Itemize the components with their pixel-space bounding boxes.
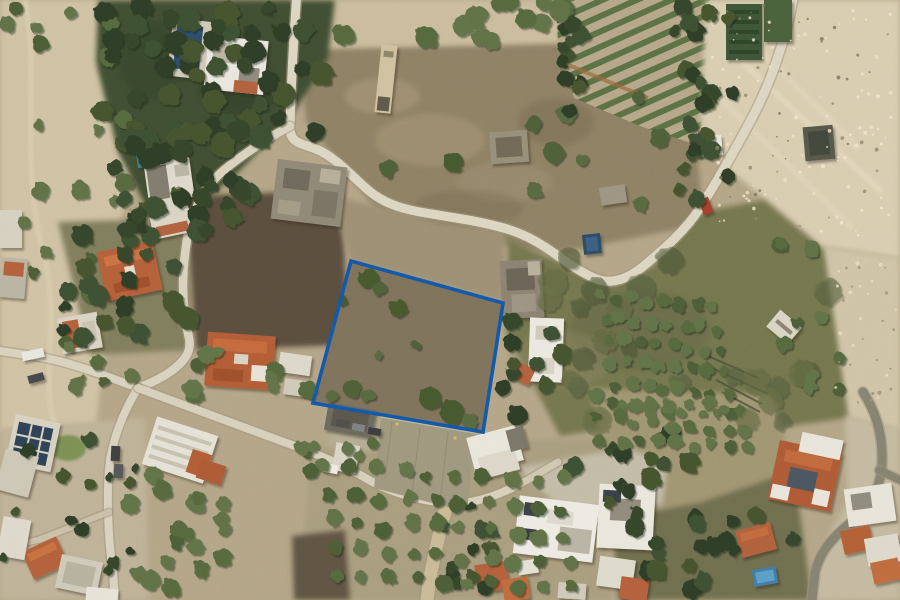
aerial-photo	[0, 0, 900, 600]
satellite-map-view	[0, 0, 900, 600]
photo-grain	[0, 0, 900, 600]
